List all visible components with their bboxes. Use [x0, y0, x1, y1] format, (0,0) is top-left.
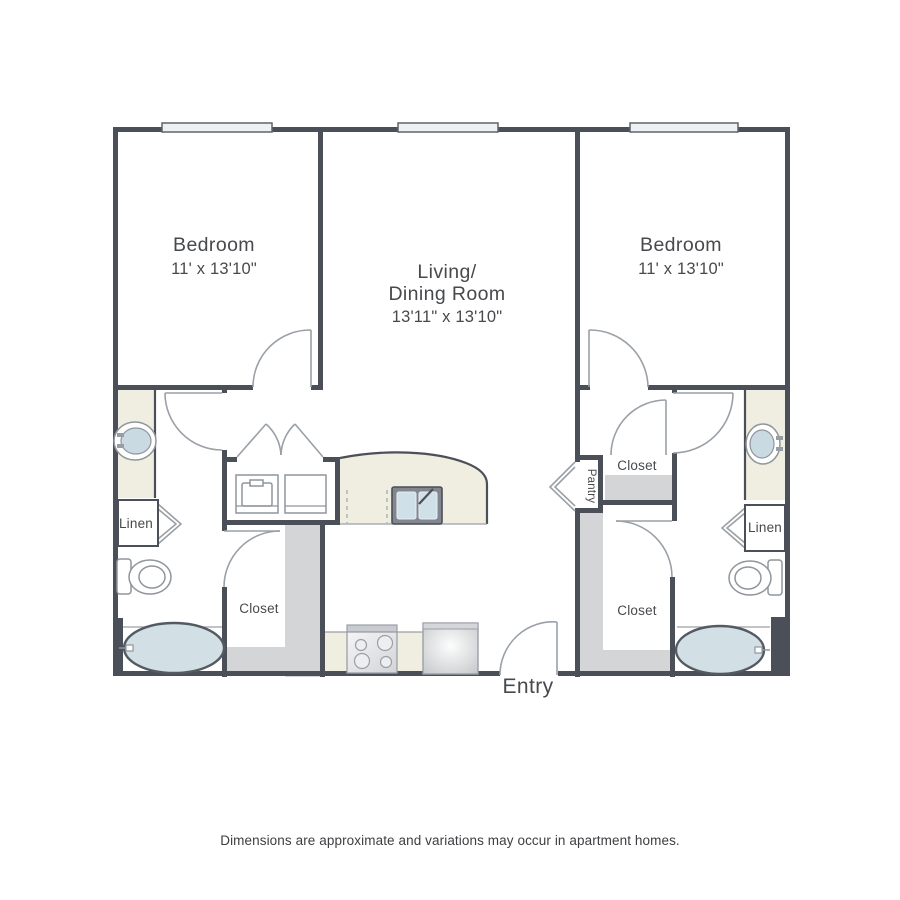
wall-bedroomR-bottom — [648, 385, 790, 390]
toilet-right — [729, 560, 782, 595]
wall-bedroomL-stub — [311, 385, 323, 390]
tub-faucet-icon — [126, 645, 133, 651]
wall-bathR-top-stub — [672, 385, 677, 393]
faucet-icon — [117, 444, 124, 448]
burner-icon — [355, 654, 370, 669]
stove — [347, 625, 397, 673]
wall-closetR-upper-bottom — [603, 500, 672, 505]
faucet-icon — [776, 447, 783, 451]
bedroom-left-door — [253, 330, 311, 387]
kitchen-sink — [392, 487, 442, 524]
bathtub-right — [676, 626, 770, 674]
closet-right-upper-floor — [605, 475, 672, 502]
living-dining-label-line1: Living/ — [417, 261, 476, 283]
burner-icon — [381, 657, 392, 668]
bathroom-left-door — [165, 393, 222, 450]
wall-bathL-mid — [222, 450, 227, 531]
wall-tubL-stub — [113, 618, 123, 676]
wall-wd-bottom — [222, 520, 340, 525]
floorplan-drawing: Bedroom 11' x 13'10" Bedroom 11' x 13'10… — [0, 0, 900, 900]
wall-bathR-bottom — [670, 577, 675, 677]
window-bedroom-left — [162, 123, 272, 132]
entry-door — [500, 622, 557, 675]
bathtub-left — [119, 623, 224, 673]
wall-bathR-mid — [672, 453, 677, 521]
bath-sink-left — [114, 422, 156, 460]
wall-kitchen-left — [320, 525, 325, 677]
pantry-label: Pantry — [585, 469, 597, 503]
window-living — [398, 123, 498, 132]
entry-label: Entry — [502, 675, 553, 698]
closet-right-upper-label: Closet — [617, 458, 657, 473]
wall-bathL-top-stub — [222, 385, 227, 393]
wall-pantry-col-bottom — [575, 508, 580, 677]
faucet-icon — [776, 436, 783, 440]
linen-right-label: Linen — [748, 520, 782, 535]
living-dining-label-line2: Dining Room — [388, 283, 505, 305]
closet-right-lower-door — [616, 521, 672, 577]
linen-right-bifold-door — [722, 508, 745, 548]
bedroom-right-door — [589, 330, 648, 387]
closet-left-label: Closet — [239, 601, 279, 616]
wall-wd-right — [335, 457, 340, 525]
dryer — [285, 475, 326, 513]
burner-icon — [378, 636, 393, 651]
closet-right-upper-door — [611, 400, 666, 455]
tub-faucet-icon — [755, 647, 762, 653]
burner-icon — [356, 640, 367, 651]
bedroom-right-dims: 11' x 13'10" — [638, 260, 724, 278]
laundry-closet-doors — [237, 424, 323, 457]
labels: Bedroom 11' x 13'10" Bedroom 11' x 13'10… — [119, 234, 782, 848]
wall-bedroomL-living — [318, 127, 323, 390]
linen-left-bifold-door — [158, 504, 181, 544]
bedroom-right-label: Bedroom — [640, 234, 722, 256]
floorplan-page: Bedroom 11' x 13'10" Bedroom 11' x 13'10… — [0, 0, 900, 900]
wall-right — [785, 127, 790, 676]
linen-left-label: Linen — [119, 516, 153, 531]
walls — [113, 127, 790, 677]
bathroom-right-door — [673, 393, 733, 453]
wall-tubR-stub — [771, 617, 785, 676]
bedroom-left-label: Bedroom — [173, 234, 255, 256]
wall-pantry-right — [598, 458, 603, 513]
wall-living-bedroomR — [575, 127, 580, 390]
wall-bedroomL-bottom — [113, 385, 253, 390]
living-dining-dims: 13'11" x 13'10" — [392, 308, 503, 326]
refrigerator — [423, 623, 478, 674]
wall-wd-top-left — [222, 457, 237, 462]
washer — [236, 475, 278, 513]
windows — [162, 123, 738, 132]
closet-right-lower-label: Closet — [617, 603, 657, 618]
disclaimer-text: Dimensions are approximate and variation… — [220, 833, 680, 848]
toilet-left — [117, 559, 171, 594]
window-bedroom-right — [630, 123, 738, 132]
wall-bathL-bottom — [222, 587, 227, 677]
closet-left-door — [224, 531, 280, 587]
bedroom-left-dims: 11' x 13'10" — [171, 260, 257, 278]
faucet-icon — [117, 433, 124, 437]
wall-pantry-col-top — [575, 385, 580, 462]
pantry-bifold-door — [550, 462, 575, 511]
